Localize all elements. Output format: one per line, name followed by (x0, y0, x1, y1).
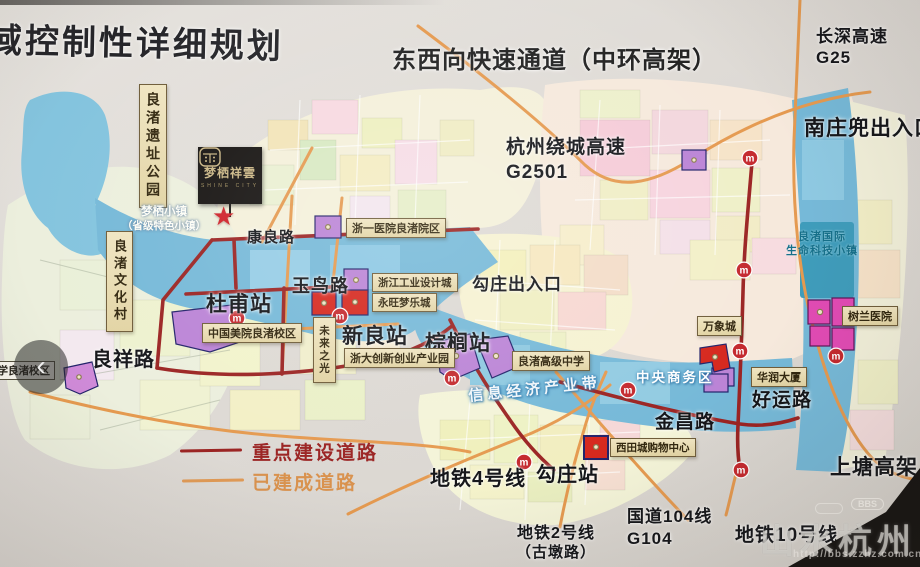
road-jinchang-label: 金昌路 (655, 407, 715, 434)
watermark-url: http://bbs.zzhz.com.cn (793, 549, 920, 560)
zone-heritage-park-label: 良渚遗址公园 (139, 84, 167, 208)
metro-line2-name: 地铁2号线 (516, 524, 596, 544)
place-huarun-label: 华润大厦 (751, 367, 807, 387)
legend-built-road-label: 已建成道路 (252, 468, 357, 495)
g104-name: 国道104线 (627, 506, 712, 528)
project-logo: 梦栖祥雲 SHINE CITY (198, 147, 262, 204)
metro-icon: m (444, 370, 461, 387)
highway-changshen-label: 长深高速 G25 (816, 26, 888, 69)
place-meiyuan-label: 中国美院良渚校区 (202, 323, 302, 343)
place-high-school-label: 良渚高级中学 (512, 351, 590, 371)
metro-line4-label: 地铁4号线 (430, 462, 526, 491)
zone-mengqi-town-label: 梦栖小镇 （省级特色小镇） (122, 205, 206, 234)
metro-icon: m (732, 343, 749, 360)
project-star-icon: ★ (212, 203, 235, 229)
interchange-gouzhuang-label: 勾庄出入口 (472, 270, 562, 295)
place-design-city-label: 浙江工业设计城 (372, 273, 458, 292)
place-shulan-label: 树兰医院 (842, 306, 898, 326)
zone-lifetech-label: 良渚国际 生命科技小镇 (786, 230, 858, 259)
highway-shangtang-label: 上塘高架 (830, 451, 918, 481)
metro-icon: m (733, 462, 750, 479)
map-subtitle: 东西向快速通道（中环高架） (392, 40, 717, 75)
svg-text:m: m (448, 374, 457, 385)
metro-icon: m (620, 382, 637, 399)
planning-map-photo: m m m m m m m m m m 域控制性详细规划 东西向快速通道（中环高… (0, 0, 920, 567)
legend-key-road-label: 重点建设道路 (252, 438, 378, 465)
road-haoyun-label: 好运路 (752, 385, 812, 412)
g104-label: 国道104线 G104 (627, 506, 712, 550)
zone-future-light-label: 未来之光 (313, 317, 336, 383)
g104-code: G104 (627, 528, 712, 550)
place-zheda-label: 浙大创新创业产业园 (344, 348, 455, 368)
svg-text:m: m (746, 154, 755, 165)
road-liangxiang-label: 良祥路 (92, 343, 155, 372)
place-xitian-label: 西田城购物中心 (610, 438, 696, 457)
place-aeon-label: 永旺梦乐城 (372, 293, 437, 312)
logo-tagline: SHINE CITY (201, 183, 259, 189)
mengqi-town-note: （省级特色小镇） (122, 220, 206, 234)
highway-raocheng-code: G2501 (506, 161, 626, 186)
station-gouzhuang-label: 勾庄站 (536, 458, 599, 487)
highway-changshen-code: G25 (816, 47, 888, 68)
page-title: 域控制性详细规划 (0, 13, 284, 68)
station-dufu-label: 杜甫站 (206, 288, 272, 318)
highway-changshen-name: 长深高速 (816, 26, 888, 47)
watermark-pill (815, 503, 843, 514)
road-yuniao-label: 玉鸟路 (292, 272, 349, 298)
svg-text:m: m (737, 466, 746, 477)
svg-text:m: m (624, 386, 633, 397)
interchange-nanzhuangdou-label: 南庄兜出入口 (804, 112, 920, 142)
watermark-badge: BBS (851, 498, 884, 510)
lifetech-line2: 生命科技小镇 (786, 244, 858, 258)
metro-icon: m (736, 262, 753, 279)
metro-line2-note: （古墩路） (516, 544, 596, 563)
metro-line2-label: 地铁2号线 （古墩路） (516, 524, 596, 563)
zone-cbd-label: 中央商务区 (636, 366, 714, 386)
back-chevron-icon: ‹ (36, 352, 45, 380)
carousel-back-button[interactable]: ‹ (14, 340, 68, 394)
road-kangliang-label: 康良路 (247, 226, 295, 247)
rain-emblem-icon (198, 147, 222, 167)
place-zheyi-label: 浙一医院良渚院区 (346, 218, 446, 238)
metro-icon: m (828, 348, 845, 365)
photo-edge-top (0, 0, 445, 5)
highway-raocheng-name: 杭州绕城高速 (506, 136, 626, 161)
svg-text:m: m (740, 266, 749, 277)
zone-culture-village-label: 良渚文化村 (106, 231, 133, 332)
place-mixc-label: 万象城 (697, 316, 742, 336)
lifetech-line1: 良渚国际 (786, 230, 858, 244)
highway-raocheng-label: 杭州绕城高速 G2501 (506, 136, 626, 185)
metro-icon: m (742, 150, 759, 167)
svg-text:m: m (736, 347, 745, 358)
svg-text:m: m (832, 352, 841, 363)
mengqi-town-name: 梦栖小镇 (122, 205, 206, 220)
station-xinliang-label: 新良站 (342, 320, 408, 350)
